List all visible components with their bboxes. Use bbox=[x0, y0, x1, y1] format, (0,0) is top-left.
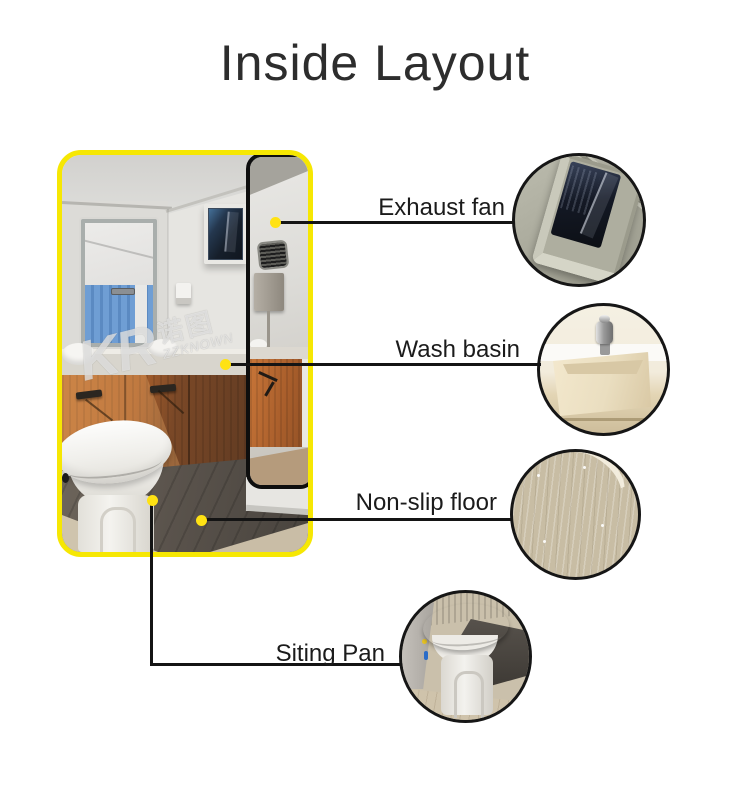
toilet-pedal-arch bbox=[100, 507, 136, 555]
window-open-pane bbox=[224, 212, 238, 253]
floor-reflection bbox=[250, 447, 312, 485]
exhaust-fan-detail-photo bbox=[512, 153, 646, 287]
exhaust-vent-reflection bbox=[257, 240, 290, 271]
floor-speckle bbox=[601, 524, 604, 527]
exhaust-window-frame bbox=[531, 153, 646, 286]
wash-basin-detail-photo bbox=[537, 303, 670, 436]
wash-basin-dot bbox=[220, 359, 231, 370]
floor-speckle bbox=[583, 466, 586, 469]
bathroom-interior-photo: KR 诺图 ZZKNOWN bbox=[57, 150, 313, 557]
door-frame-reflection bbox=[302, 359, 312, 447]
wall-hook bbox=[62, 473, 69, 483]
siting-pan-detail-photo bbox=[399, 590, 532, 723]
floor-speckle bbox=[537, 474, 540, 477]
basin-body bbox=[553, 352, 651, 416]
non-slip-floor-label: Non-slip floor bbox=[297, 489, 497, 517]
mirror-reflection-handle bbox=[111, 288, 135, 295]
exhaust-fan-label: Exhaust fan bbox=[305, 194, 505, 222]
non-slip-floor-detail-photo bbox=[510, 449, 641, 580]
siting-pan-dot bbox=[147, 495, 158, 506]
bathroom-scene: KR 诺图 ZZKNOWN bbox=[62, 155, 308, 552]
siting-pan-connector-line-vertical bbox=[150, 500, 153, 665]
siting-pan-label: Siting Pan bbox=[185, 640, 385, 668]
cabinet-door-seam bbox=[188, 375, 190, 471]
pan-pedal-arch bbox=[454, 671, 484, 718]
small-window bbox=[204, 204, 247, 264]
wash-basin-label: Wash basin bbox=[320, 336, 520, 364]
mirror-reflection-ceiling-line bbox=[81, 238, 157, 267]
counter-edge-line bbox=[540, 418, 667, 421]
basin-inner-shadow bbox=[563, 360, 643, 374]
floor-speckle bbox=[543, 540, 546, 543]
blue-valve bbox=[424, 651, 428, 660]
page-title: Inside Layout bbox=[0, 34, 750, 92]
mirror-reflection-ceiling bbox=[250, 157, 312, 201]
non-slip-floor-dot bbox=[196, 515, 207, 526]
exhaust-fan-dot bbox=[270, 217, 281, 228]
faucet-body bbox=[596, 321, 613, 344]
faucet-knob bbox=[599, 315, 610, 323]
yellow-valve bbox=[422, 639, 427, 644]
non-slip-floor-connector-line bbox=[201, 518, 512, 521]
